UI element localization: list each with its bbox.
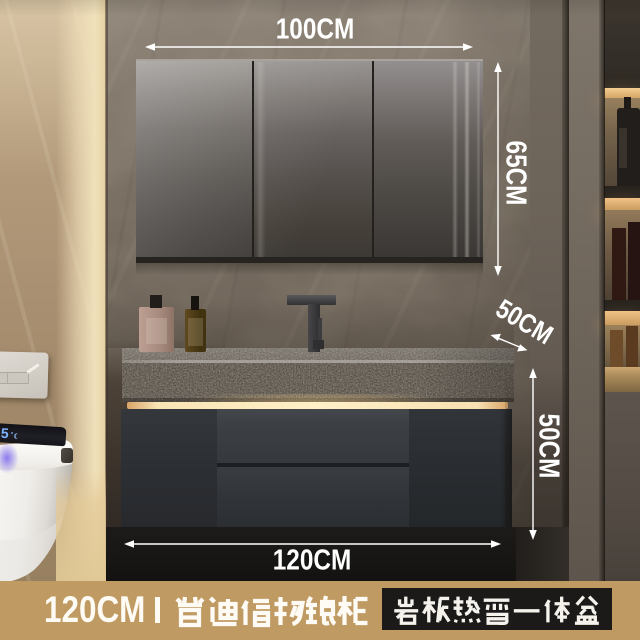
svg-text:65CM: 65CM: [500, 141, 532, 206]
svg-text:120CM: 120CM: [44, 590, 145, 631]
svg-text:100CM: 100CM: [276, 13, 354, 45]
svg-text:120CM: 120CM: [273, 544, 351, 576]
svg-text:50CM: 50CM: [491, 294, 558, 351]
svg-text:50CM: 50CM: [533, 414, 565, 479]
